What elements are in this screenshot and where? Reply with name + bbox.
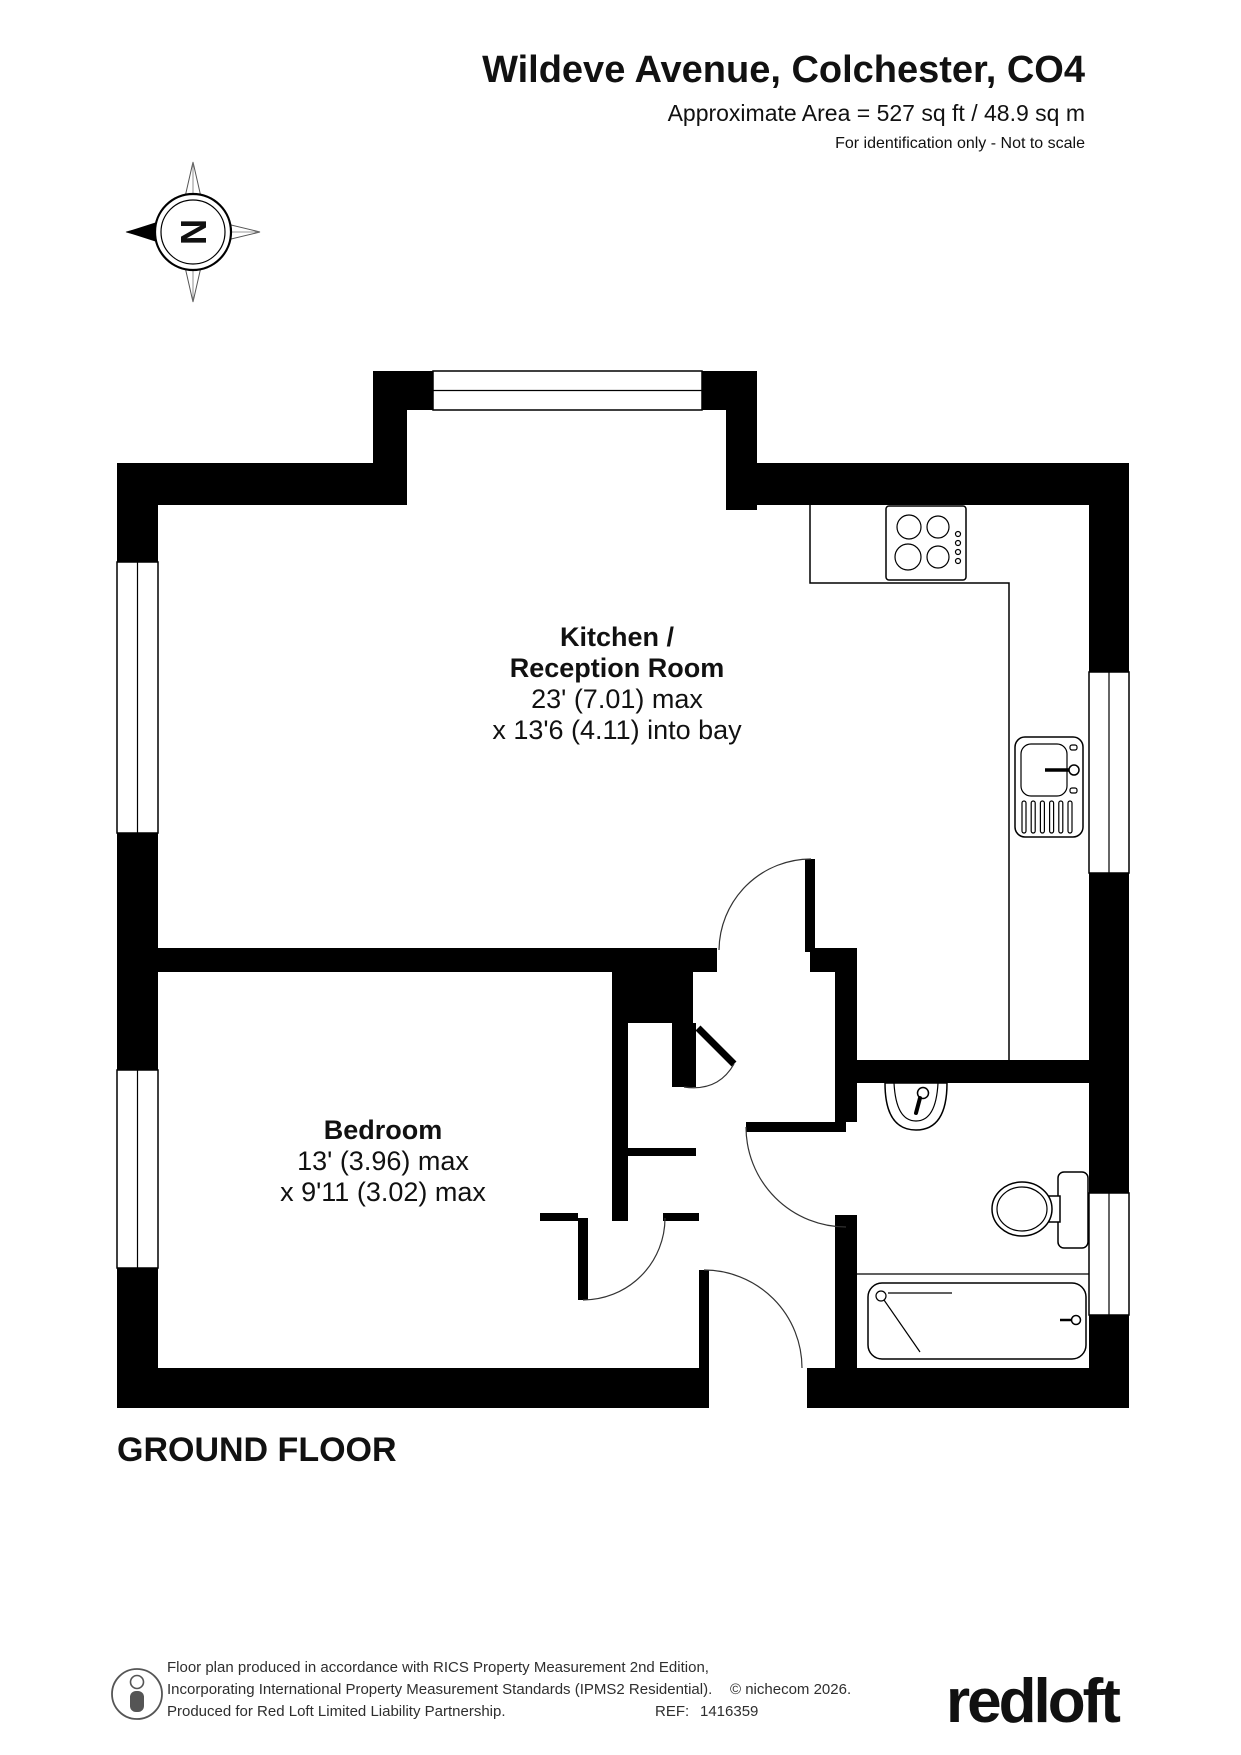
footer: Floor plan produced in accordance with R… <box>112 1659 1120 1736</box>
nichecom-person-icon <box>112 1669 162 1719</box>
kitchen-dims-line2: x 13'6 (4.11) into bay <box>492 715 742 745</box>
window-bathroom-right <box>1089 1193 1129 1315</box>
footer-line2: Incorporating International Property Mea… <box>167 1681 851 1698</box>
floor-plan: Wildeve Avenue, Colchester, CO4 Approxim… <box>0 0 1241 1755</box>
kitchen-dims-line1: 23' (7.01) max <box>531 684 703 714</box>
window-bay <box>433 371 702 410</box>
kitchen-sink-icon <box>1015 737 1083 837</box>
footer-line2-text: Incorporating International Property Mea… <box>167 1681 712 1698</box>
kitchen-name-line2: Reception Room <box>510 653 725 683</box>
bedroom-dims-line2: x 9'11 (3.02) max <box>280 1177 486 1207</box>
toilet-icon <box>992 1172 1088 1248</box>
door-bathroom <box>746 1122 846 1227</box>
floor-label: GROUND FLOOR <box>117 1431 397 1469</box>
page-title: Wildeve Avenue, Colchester, CO4 <box>482 49 1085 91</box>
door-kitchen <box>719 859 815 952</box>
footer-ref-value: 1416359 <box>700 1703 758 1720</box>
door-entrance <box>699 1270 802 1368</box>
walls <box>117 371 1129 1408</box>
compass-north-letter: N <box>173 219 214 245</box>
bedroom-label: Bedroom 13' (3.96) max x 9'11 (3.02) max <box>280 1115 486 1207</box>
floorplan-page: Wildeve Avenue, Colchester, CO4 Approxim… <box>0 0 1241 1755</box>
bedroom-name: Bedroom <box>324 1115 443 1145</box>
footer-line3: Produced for Red Loft Limited Liability … <box>167 1703 758 1720</box>
redloft-logo: redloft <box>946 1667 1120 1736</box>
kitchen-label: Kitchen / Reception Room 23' (7.01) max … <box>492 622 742 745</box>
compass-icon: N <box>126 162 260 302</box>
wash-basin-icon <box>885 1083 947 1130</box>
header: Wildeve Avenue, Colchester, CO4 Approxim… <box>482 49 1085 152</box>
window-kitchen-left <box>117 562 158 833</box>
footer-line1: Floor plan produced in accordance with R… <box>167 1659 709 1676</box>
window-kitchen-right <box>1089 672 1129 873</box>
disclaimer: For identification only - Not to scale <box>835 135 1085 152</box>
kitchen-name-line1: Kitchen / <box>560 622 675 652</box>
bath-shower-icon <box>857 1274 1089 1359</box>
window-bedroom-left <box>117 1070 158 1268</box>
hob-icon <box>886 506 966 580</box>
footer-ref-label: REF: <box>655 1703 689 1720</box>
bedroom-dims-line1: 13' (3.96) max <box>297 1146 469 1176</box>
approximate-area: Approximate Area = 527 sq ft / 48.9 sq m <box>668 100 1085 126</box>
footer-line3-text: Produced for Red Loft Limited Liability … <box>167 1703 506 1720</box>
door-bedroom <box>578 1218 665 1300</box>
footer-copyright: © nichecom 2026. <box>730 1681 851 1698</box>
